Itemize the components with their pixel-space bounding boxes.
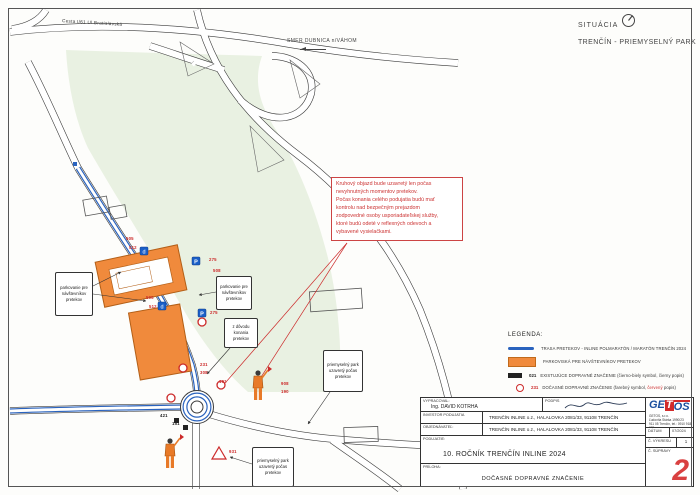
legend-item: TRASA PRETEKOV - INLINE POLMARATÓN / MAR… <box>508 344 698 352</box>
datum-value: 07/2024 <box>672 429 693 433</box>
parking-area-icon <box>508 357 536 367</box>
sign-existing-icon <box>508 373 522 378</box>
signature <box>563 400 633 410</box>
vykres-label: Č. VÝKRESU <box>648 439 676 443</box>
callout-box: z dôvodu konania pretekov <box>224 318 258 348</box>
priloha-label: PRÍLOHA: <box>423 465 645 469</box>
direction-label: SMER DUBNICA n/VÁHOM <box>287 38 357 44</box>
vypracoval-value: Ing. DAVID KOTRHA <box>431 404 542 410</box>
route-line-icon <box>508 347 534 350</box>
drawing-sheet: d P d P Cesta I/61 Ul.Bratislavská SMER … <box>0 0 700 495</box>
svg-text:P: P <box>194 260 198 266</box>
investor-label: INVESTOR PODUJATIA <box>423 413 482 417</box>
sign-number-label: 908 <box>281 381 289 386</box>
legend-item: 231DOČASNÉ DOPRAVNÉ ZNAČENIE (farebný sy… <box>508 384 698 392</box>
objednavatel-value: TRENČÍN INLINE o.z., HALALOVKA 2081/33, … <box>489 427 645 432</box>
svg-text:d: d <box>142 249 145 255</box>
callout-box: parkovanie pre návštevníkov pretekov <box>55 272 93 316</box>
svg-text:d: d <box>160 304 163 310</box>
sign-number-label: 508 <box>213 268 221 273</box>
investor-value: TRENČÍN INLINE o.z., HALALOVKA 2081/33, … <box>489 415 645 420</box>
sign-number-label: 931 <box>229 449 237 454</box>
sign-number-label: 512 <box>149 304 157 309</box>
vypracoval-label: VYPRACOVAL: <box>423 399 542 403</box>
sign-number-label: 505 <box>146 295 154 300</box>
sign-number-label: 275 <box>209 257 217 262</box>
callout-box: priemyselný park uzavretý počas pretekov <box>323 350 363 392</box>
sign-number-label: 101 <box>219 379 227 384</box>
podujatie-label: PODUJATIE: <box>423 437 645 441</box>
marshal-figure <box>165 434 184 468</box>
title-block: VYPRACOVAL: Ing. DAVID KOTRHA PODPIS INV… <box>420 397 694 487</box>
callout-box: parkovanie pre návštevníkov pretekov <box>216 276 252 310</box>
closure-note: Kruhový objazd bude uzavretý len počas n… <box>331 177 463 241</box>
north-compass-icon <box>621 13 636 28</box>
svg-text:P: P <box>200 312 204 318</box>
podujatie-value: 10. ROČNÍK TRENČÍN INLINE 2024 <box>443 451 645 458</box>
vykres-value: 1 <box>679 439 693 444</box>
sign-temporary-icon <box>516 384 524 392</box>
getos-logo: GETOS <box>649 400 693 413</box>
sign-number-label: 421 <box>160 413 168 418</box>
callout-box: priemyselný park uzavretý počas pretekov <box>252 447 294 487</box>
legend-item: 021EXISTUJÚCE DOPRAVNÉ ZNAČENIE (čierno-… <box>508 371 698 379</box>
situacia-label: SITUÁCIA <box>578 22 618 29</box>
roundabout <box>181 391 214 424</box>
direction-arrow-icon <box>300 49 326 50</box>
sign-number-label: 505 <box>126 236 134 241</box>
sign-number-label: 308 <box>200 370 208 375</box>
suprava-label: Č. SÚPRAVY <box>648 449 693 453</box>
suprava-value: 2 <box>672 454 689 486</box>
datum-label: DÁTUM <box>648 429 669 433</box>
sign-number-label: 275 <box>210 310 218 315</box>
sign-number-label: 151 <box>172 421 180 426</box>
legend-title: LEGENDA: <box>508 332 698 338</box>
sign-number-label: 512 <box>129 245 137 250</box>
page-title: TRENČÍN - PRIEMYSELNÝ PARK <box>578 39 696 46</box>
legend-item: PARKOVISKÁ PRE NÁVŠTEVNÍKOV PRETEKOV <box>508 357 698 367</box>
parking-areas <box>95 245 191 380</box>
sign-number-label: 190 <box>281 389 289 394</box>
legend: LEGENDA: TRASA PRETEKOV - INLINE POLMARA… <box>498 332 698 396</box>
sign-number-label: 231 <box>200 362 208 367</box>
objednavatel-label: OBJEDNÁVATEĽ: <box>423 425 482 429</box>
priloha-value: DOČASNÉ DOPRAVNÉ ZNAČENIE <box>421 476 645 482</box>
